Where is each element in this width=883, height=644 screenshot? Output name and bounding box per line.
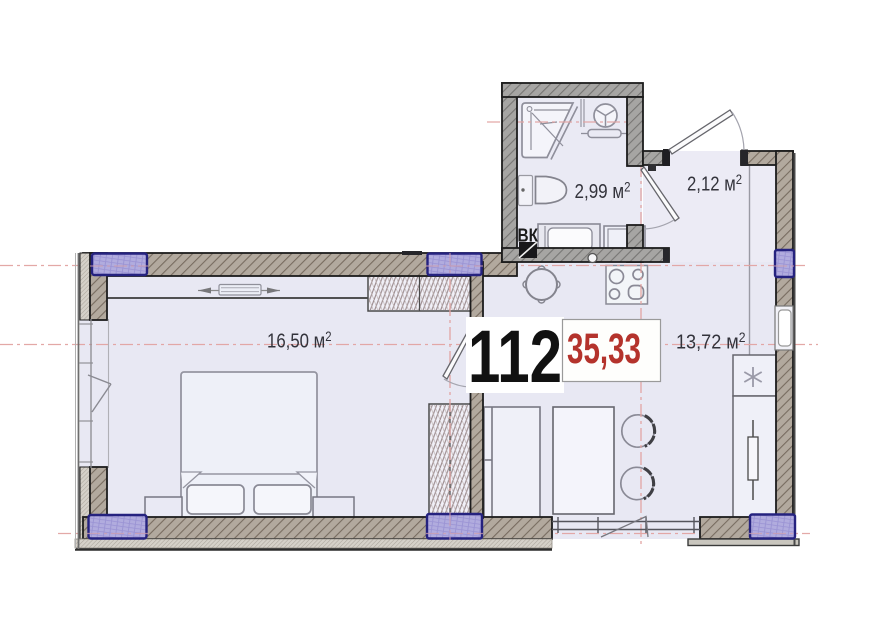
svg-text:16,50 м2: 16,50 м2 — [267, 329, 332, 353]
svg-text:13,72 м2: 13,72 м2 — [676, 330, 746, 354]
svg-text:ВК: ВК — [518, 226, 539, 246]
svg-text:35,33: 35,33 — [567, 325, 641, 373]
svg-text:2,12 м2: 2,12 м2 — [687, 172, 742, 196]
svg-text:2,99 м2: 2,99 м2 — [575, 180, 631, 204]
svg-text:112: 112 — [468, 315, 562, 398]
